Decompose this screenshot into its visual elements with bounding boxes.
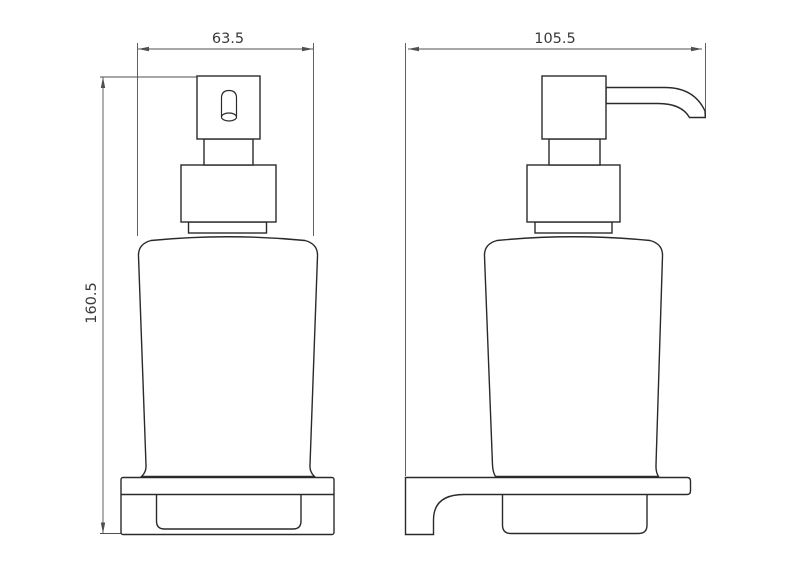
- side-bottle-body: [484, 237, 662, 477]
- side-spout: [606, 88, 705, 118]
- front-neck-ring: [189, 222, 267, 233]
- side-holder-ring: [503, 495, 648, 534]
- front-pump-collar: [181, 165, 276, 222]
- arrowhead-right: [691, 47, 702, 51]
- front-bottle-body: [138, 237, 317, 477]
- arrowhead-left: [408, 47, 419, 51]
- front-pump-head: [197, 76, 260, 139]
- drawing-canvas: 63.5 105.5 160.5: [0, 0, 800, 565]
- dim-label-front-width: 63.5: [200, 31, 256, 47]
- side-pump-head: [542, 76, 606, 139]
- front-holder-block: [121, 478, 334, 535]
- side-pump-stem: [549, 139, 600, 165]
- dim-label-side-depth: 105.5: [527, 31, 583, 47]
- arrowhead-right: [302, 47, 313, 51]
- side-wall-bracket: [406, 478, 691, 535]
- dim-label-overall-height: 160.5: [84, 275, 100, 331]
- side-view: [406, 76, 706, 535]
- arrowhead-bottom: [101, 523, 105, 534]
- arrowhead-left: [138, 47, 149, 51]
- arrowhead-top: [101, 77, 105, 88]
- side-neck-ring: [535, 222, 612, 233]
- front-view: [121, 76, 334, 535]
- line-art: [0, 0, 800, 565]
- front-pump-stem: [204, 139, 253, 165]
- side-pump-collar: [527, 165, 620, 222]
